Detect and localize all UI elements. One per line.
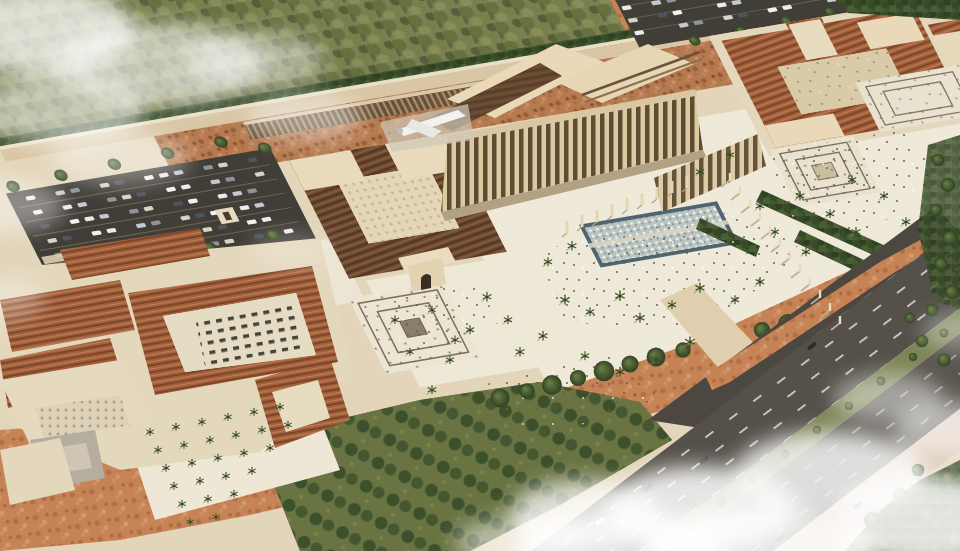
median-shrub xyxy=(909,353,917,361)
tree xyxy=(945,285,959,299)
aerial-rendering xyxy=(0,0,960,551)
roadside-tree xyxy=(519,383,534,398)
tree xyxy=(934,257,948,271)
tree xyxy=(905,313,916,324)
tree xyxy=(926,304,939,317)
fog-patch xyxy=(247,94,363,142)
roadside-tree xyxy=(675,342,690,357)
fog-patch xyxy=(833,373,943,423)
roadside-tree xyxy=(491,389,510,408)
roadside-tree xyxy=(594,361,615,382)
roadside-tree xyxy=(542,375,562,395)
fog-patch xyxy=(50,130,190,186)
roadside-tree xyxy=(570,370,586,386)
palace-complex-rendering xyxy=(0,0,960,551)
fog-patch xyxy=(185,32,325,88)
arch xyxy=(421,274,431,290)
tree xyxy=(941,178,955,192)
tree xyxy=(937,353,951,367)
tree xyxy=(932,154,945,167)
tree xyxy=(930,204,943,217)
fog-patch xyxy=(250,232,330,268)
tree xyxy=(942,230,957,245)
